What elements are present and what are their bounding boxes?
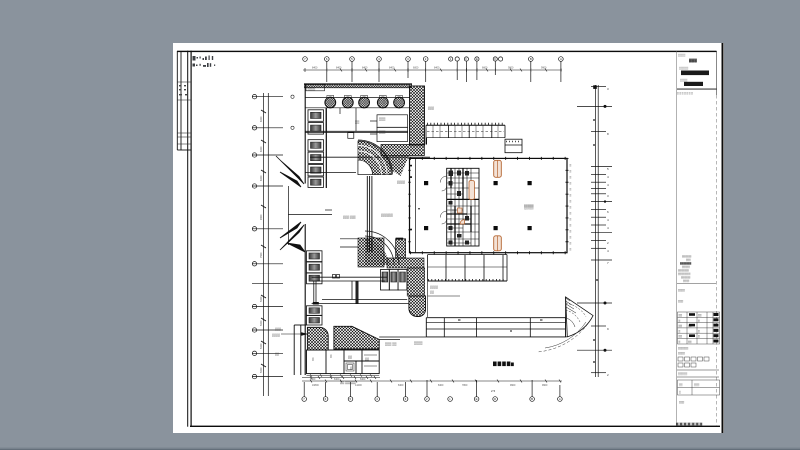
svg-text:▒▒▒: ▒▒▒ xyxy=(678,300,683,303)
svg-text:▒: ▒ xyxy=(570,194,572,197)
svg-text:8400: 8400 xyxy=(312,67,318,70)
svg-text:8400: 8400 xyxy=(362,67,368,70)
svg-text:▒▒▒: ▒▒▒ xyxy=(428,106,434,110)
svg-text:▒▒: ▒▒ xyxy=(430,290,434,294)
svg-text:F: F xyxy=(466,57,468,61)
svg-text:▒: ▒ xyxy=(570,236,572,239)
svg-text:▒▒▒▒: ▒▒▒▒ xyxy=(678,53,686,57)
svg-text:8400: 8400 xyxy=(260,146,263,152)
svg-text:2 5: 2 5 xyxy=(491,389,496,393)
svg-text:5400: 5400 xyxy=(260,320,263,326)
svg-text:▒ ▒ ▒ ▒ ▒ ▒ ▒: ▒ ▒ ▒ ▒ ▒ ▒ ▒ xyxy=(677,92,693,95)
svg-text:▒▒▒▒▒▒: ▒▒▒▒▒▒ xyxy=(681,276,691,279)
svg-text:▒: ▒ xyxy=(330,354,332,358)
svg-text:▒▒: ▒▒ xyxy=(679,383,683,387)
svg-text:A: A xyxy=(559,397,561,401)
svg-text:▒▒▒▒▒▒▒: ▒▒▒▒▒▒▒ xyxy=(678,269,689,272)
svg-text:▒▒▒▒: ▒▒▒▒ xyxy=(430,285,438,289)
svg-text:▒: ▒ xyxy=(350,366,352,370)
svg-text:▒▒▒▒: ▒▒▒▒ xyxy=(678,352,685,355)
svg-text:8400: 8400 xyxy=(260,175,263,181)
svg-text:▒▒▒▒▒: ▒▒▒▒▒ xyxy=(679,66,688,70)
svg-text:▒▒▒: ▒▒▒ xyxy=(379,130,386,134)
svg-text:▒▒▒ ▒▒: ▒▒▒ ▒▒ xyxy=(385,342,397,346)
svg-text:▒▒▒▒: ▒▒▒▒ xyxy=(680,78,688,82)
svg-text:8400: 8400 xyxy=(260,116,263,122)
svg-text:▒▒ ▒▒▒▒▒: ▒▒ ▒▒▒▒▒ xyxy=(340,381,357,385)
svg-text:▒▒▒▒: ▒▒▒▒ xyxy=(272,333,280,337)
svg-text:A: A xyxy=(560,57,562,61)
svg-text:▒: ▒ xyxy=(570,200,572,203)
svg-text:B: B xyxy=(531,397,533,401)
svg-text:▒: ▒ xyxy=(570,242,572,245)
svg-text:▒▒: ▒▒ xyxy=(679,314,683,317)
svg-text:▒▒: ▒▒ xyxy=(698,314,702,317)
svg-text:▒: ▒ xyxy=(570,182,572,185)
svg-text:▒: ▒ xyxy=(679,390,681,394)
svg-text:▒: ▒ xyxy=(570,218,572,221)
svg-text:6600: 6600 xyxy=(482,67,488,70)
svg-text:8400: 8400 xyxy=(434,67,440,70)
svg-text:▒▒▒: ▒▒▒ xyxy=(686,259,691,262)
svg-text:▒: ▒ xyxy=(570,212,572,215)
svg-text:9900: 9900 xyxy=(510,384,516,387)
svg-text:8400: 8400 xyxy=(438,384,444,387)
svg-text:D: D xyxy=(494,397,496,401)
svg-text:▒▒▒▒▒: ▒▒▒▒▒ xyxy=(682,266,690,269)
svg-text:▒: ▒ xyxy=(679,330,681,333)
svg-text:9900: 9900 xyxy=(542,384,548,387)
svg-text:▒: ▒ xyxy=(679,341,681,344)
svg-text:8400: 8400 xyxy=(310,378,316,381)
svg-text:E: E xyxy=(476,397,478,401)
svg-text:▒▒: ▒▒ xyxy=(679,335,683,338)
svg-text:8400: 8400 xyxy=(389,67,395,70)
svg-text:▒▒▒▒: ▒▒▒▒ xyxy=(683,280,690,283)
svg-text:D: D xyxy=(494,57,496,61)
svg-text:▒▒▒▒▒▒: ▒▒▒▒▒▒ xyxy=(381,213,393,217)
svg-text:▒: ▒ xyxy=(698,335,700,338)
svg-text:B: B xyxy=(530,57,532,61)
svg-text:▒: ▒ xyxy=(570,188,572,191)
svg-text:▒▒▒▒: ▒▒▒▒ xyxy=(414,341,423,345)
svg-text:7800: 7800 xyxy=(462,384,468,387)
svg-text:▒▒: ▒▒ xyxy=(348,355,352,359)
svg-text:▒▒▒: ▒▒▒ xyxy=(308,87,316,91)
svg-text:▒: ▒ xyxy=(570,164,572,167)
svg-text:14400: 14400 xyxy=(355,384,362,387)
svg-text:▒: ▒ xyxy=(570,224,572,227)
svg-text:9000: 9000 xyxy=(260,214,263,220)
svg-text:▒▒▒: ▒▒▒ xyxy=(275,327,281,331)
svg-text:▒▒: ▒▒ xyxy=(365,357,369,361)
svg-text:5400: 5400 xyxy=(260,296,263,302)
svg-text:8400: 8400 xyxy=(398,384,404,387)
svg-text:E: E xyxy=(476,57,478,61)
svg-text:9900: 9900 xyxy=(541,67,547,70)
svg-text:▓▓▓▓▓▓▓: ▓▓▓▓▓▓▓ xyxy=(680,262,692,265)
svg-text:▒: ▒ xyxy=(698,319,700,322)
svg-text:▒▒▒: ▒▒▒ xyxy=(679,401,684,404)
svg-text:▒: ▒ xyxy=(698,330,700,333)
svg-text:▒▒▒: ▒▒▒ xyxy=(694,383,700,387)
svg-text:▓▒▓▒▓▒▓▒▓▒▓▒▓: ▓▒▓▒▓▒▓▒▓▒▓▒▓ xyxy=(676,422,703,426)
svg-text:▓▓▓: ▓▓▓ xyxy=(689,58,697,63)
svg-text:▒▒▒▒▒: ▒▒▒▒▒ xyxy=(678,372,687,376)
svg-text:▒: ▒ xyxy=(312,357,314,361)
svg-text:▒▒▒▒▒▒: ▒▒▒▒▒▒ xyxy=(678,347,688,350)
svg-text:5400: 5400 xyxy=(260,367,263,373)
svg-text:▒: ▒ xyxy=(679,319,681,322)
svg-text:▒: ▒ xyxy=(570,170,572,173)
svg-text:▒▒▒▒: ▒▒▒▒ xyxy=(397,180,405,184)
svg-text:▒: ▒ xyxy=(570,248,572,251)
svg-text:▒▒▒ ▒▒▒: ▒▒▒ ▒▒▒ xyxy=(343,215,356,219)
svg-text:▒: ▒ xyxy=(570,230,572,233)
svg-text:▒▒▒▒: ▒▒▒▒ xyxy=(678,289,685,292)
svg-text:9900: 9900 xyxy=(508,67,514,70)
svg-text:▒: ▒ xyxy=(570,206,572,209)
svg-text:5400: 5400 xyxy=(260,343,263,349)
svg-text:▒▒: ▒▒ xyxy=(275,352,279,356)
svg-text:7500: 7500 xyxy=(260,252,263,258)
svg-text:▒▒: ▒▒ xyxy=(679,325,683,328)
svg-text:▒▒: ▒▒ xyxy=(688,341,692,344)
svg-text:6000: 6000 xyxy=(413,67,419,70)
svg-text:▒▒▒▒▒▒: ▒▒▒▒▒▒ xyxy=(682,255,692,258)
svg-text:▒: ▒ xyxy=(570,176,572,179)
svg-text:▒▒▒▒▒▒▒▒: ▒▒▒▒▒▒▒▒ xyxy=(678,273,691,276)
svg-text:8400: 8400 xyxy=(360,378,366,381)
svg-text:16800: 16800 xyxy=(312,384,319,387)
svg-text:▒▒▒: ▒▒▒ xyxy=(379,117,386,121)
svg-text:8400: 8400 xyxy=(336,67,342,70)
